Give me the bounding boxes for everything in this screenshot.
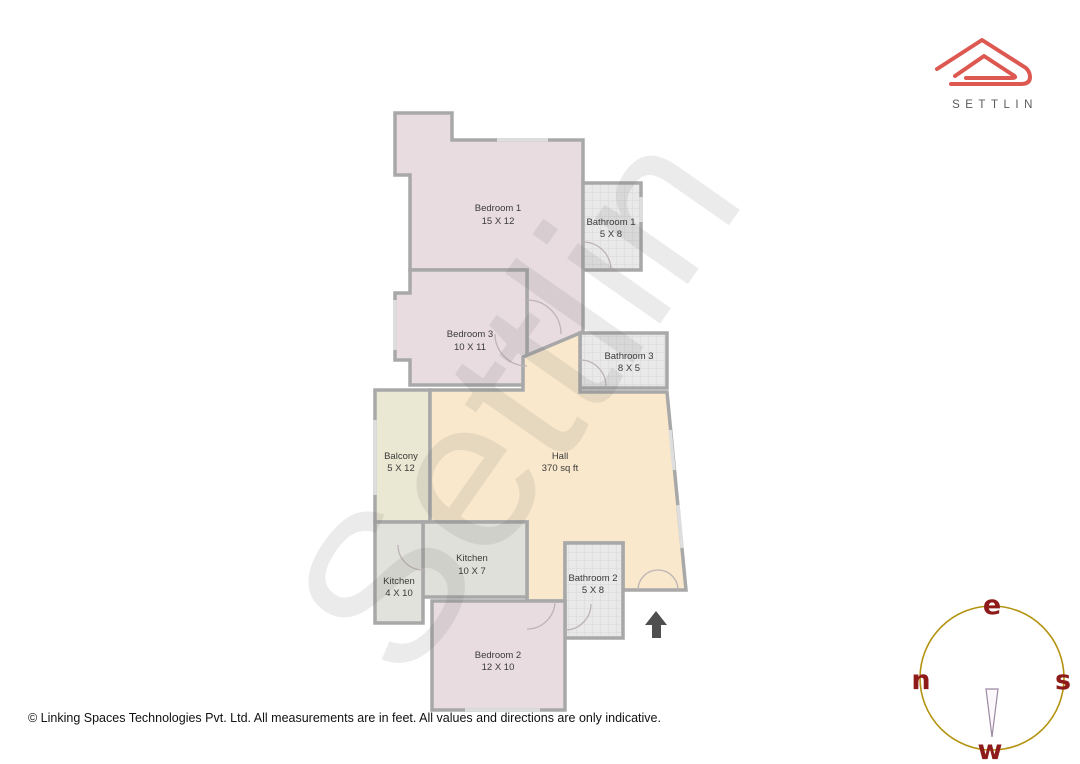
bedroom-1-label: Bedroom 1 <box>475 203 521 214</box>
compass-icon: e n s w <box>911 590 1071 764</box>
footer-disclaimer: © Linking Spaces Technologies Pvt. Ltd. … <box>28 711 661 725</box>
compass-s-label: s <box>1055 665 1071 696</box>
hall-label: Hall <box>552 451 568 462</box>
bathroom-1-dims: 5 X 8 <box>600 229 622 240</box>
kitchen-small-label: Kitchen <box>383 576 415 587</box>
settlin-logo-icon <box>937 40 1030 84</box>
bathroom-3-label: Bathroom 3 <box>604 351 653 362</box>
kitchen-main-dims: 10 X 7 <box>458 566 485 577</box>
balcony-dims: 5 X 12 <box>387 463 414 474</box>
bathroom-3-dims: 8 X 5 <box>618 363 640 374</box>
compass-n-label: n <box>911 665 930 696</box>
bathroom-2-dims: 5 X 8 <box>582 585 604 596</box>
compass-e-label: e <box>983 590 1001 621</box>
bedroom-2-dims: 12 X 10 <box>482 662 515 673</box>
bedroom-2-label: Bedroom 2 <box>475 650 521 661</box>
compass-w-label: w <box>978 735 1003 764</box>
bedroom-3-dims: 10 X 11 <box>454 342 486 353</box>
hall-dims: 370 sq ft <box>542 463 579 474</box>
balcony-label: Balcony <box>384 451 418 462</box>
bathroom-2-label: Bathroom 2 <box>568 573 617 584</box>
kitchen-main-label: Kitchen <box>456 553 488 564</box>
bathroom-1-label: Bathroom 1 <box>586 217 635 228</box>
floor-plan-drawing: Settlin Bedroom 1 15 X 12 Bathroom 1 5 X… <box>0 0 1080 764</box>
entrance-arrow-icon <box>645 611 667 638</box>
brand-wordmark: SETTLIN <box>952 99 1038 111</box>
floor-plan-page: Settlin Bedroom 1 15 X 12 Bathroom 1 5 X… <box>0 0 1080 764</box>
bedroom-1-dims: 15 X 12 <box>482 216 515 227</box>
kitchen-small-dims: 4 X 10 <box>385 588 412 599</box>
bedroom-3-label: Bedroom 3 <box>447 329 493 340</box>
compass-needle <box>986 689 998 737</box>
